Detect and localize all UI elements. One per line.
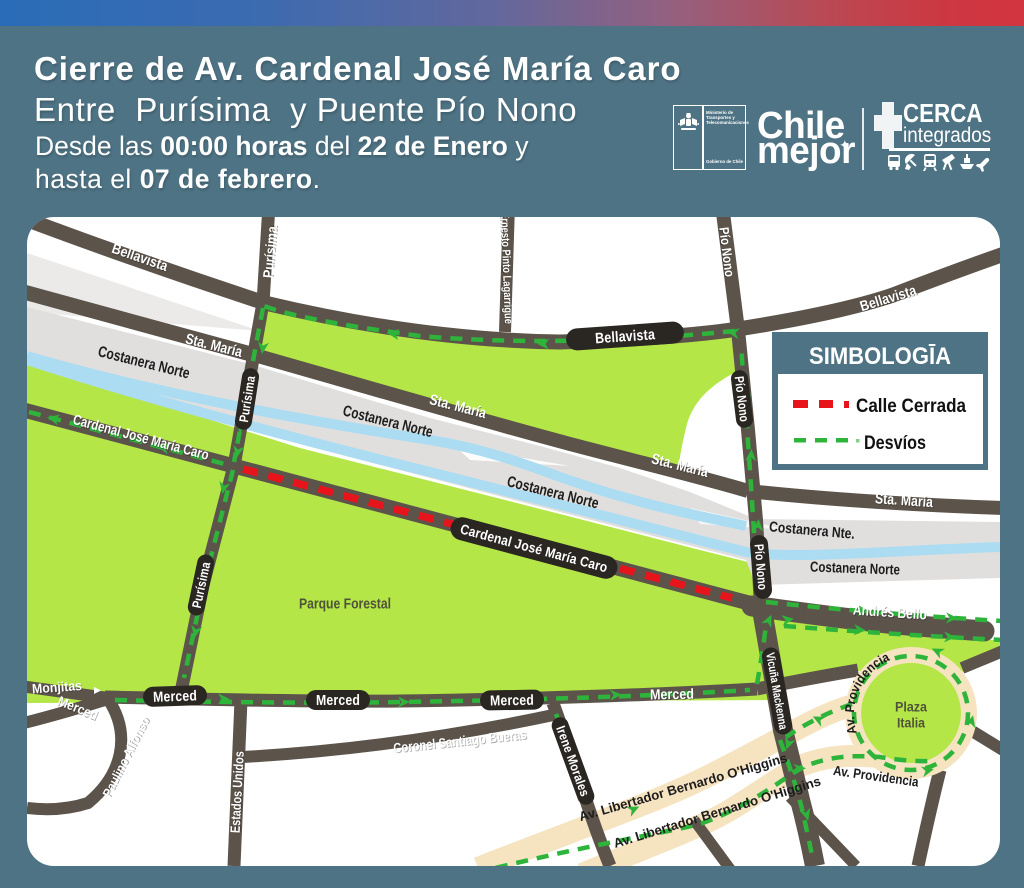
svg-text:Merced: Merced [490, 693, 534, 710]
svg-text:Merced: Merced [650, 687, 694, 704]
svg-text:Plaza: Plaza [895, 700, 927, 715]
svg-text:SIMBOLOGĪA: SIMBOLOGĪA [809, 343, 951, 370]
svg-text:Calle Cerrada: Calle Cerrada [856, 395, 966, 417]
svg-text:Italia: Italia [897, 716, 925, 731]
svg-text:Desvíos: Desvíos [864, 432, 926, 454]
svg-text:Merced: Merced [316, 693, 360, 709]
svg-text:Costanera Norte: Costanera Norte [810, 560, 901, 579]
svg-text:Parque Forestal: Parque Forestal [299, 595, 391, 612]
svg-text:Merced: Merced [153, 688, 198, 706]
